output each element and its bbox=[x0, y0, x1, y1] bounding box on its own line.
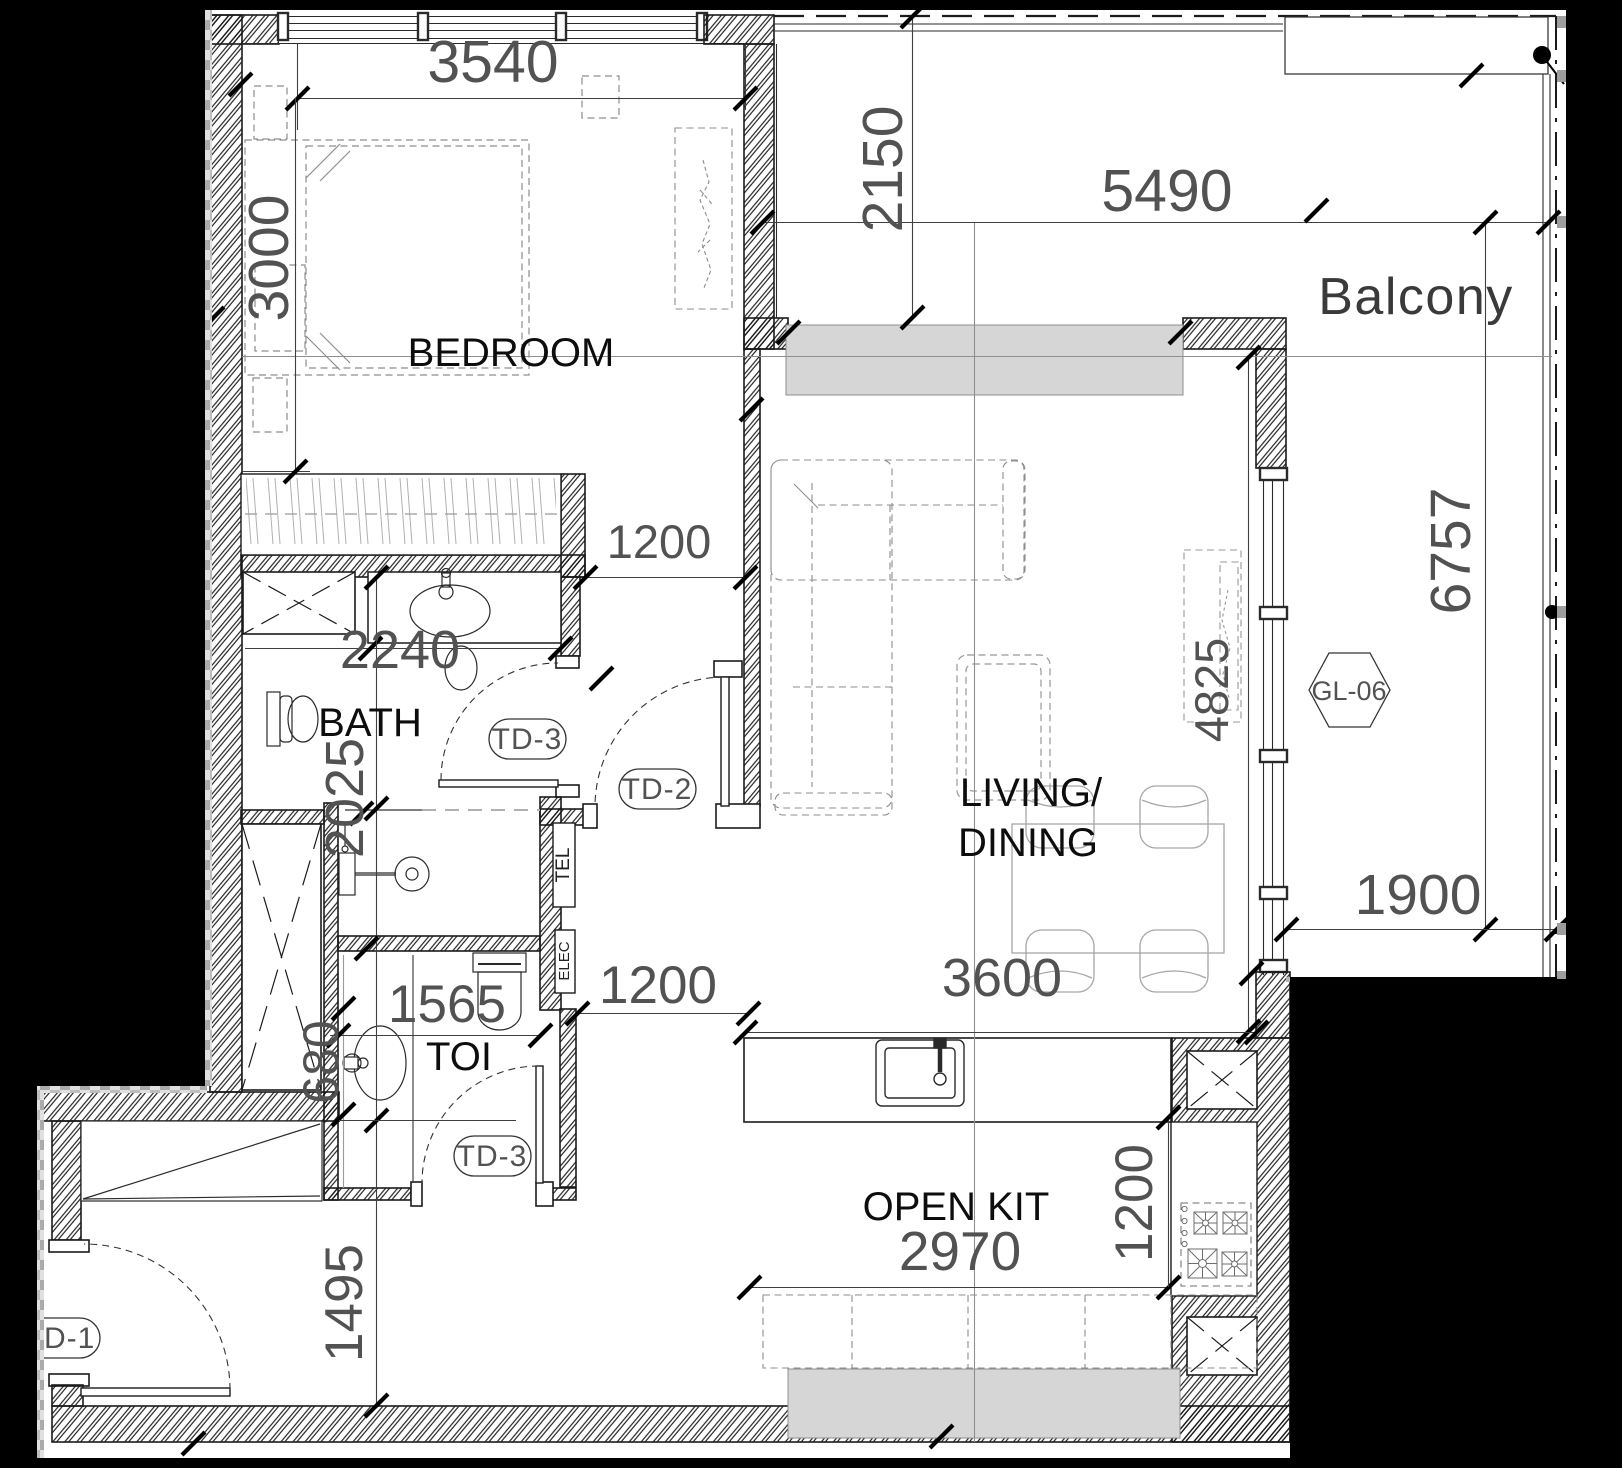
svg-text:OPEN KIT: OPEN KIT bbox=[863, 1185, 1050, 1229]
svg-text:2150: 2150 bbox=[851, 106, 915, 233]
svg-text:1200: 1200 bbox=[1105, 1144, 1164, 1262]
svg-text:LIVING/: LIVING/ bbox=[960, 771, 1103, 815]
svg-text:GL-06: GL-06 bbox=[1311, 676, 1386, 706]
svg-text:TD-2: TD-2 bbox=[622, 773, 693, 806]
svg-text:1200: 1200 bbox=[599, 956, 717, 1015]
svg-text:2025: 2025 bbox=[315, 738, 375, 858]
svg-text:6757: 6757 bbox=[1419, 488, 1483, 615]
svg-text:2970: 2970 bbox=[899, 1220, 1021, 1282]
svg-text:TD-3: TD-3 bbox=[457, 1140, 528, 1173]
svg-text:5490: 5490 bbox=[1101, 158, 1232, 224]
svg-text:1495: 1495 bbox=[315, 1244, 374, 1362]
svg-text:4825: 4825 bbox=[1185, 638, 1238, 743]
svg-text:BATH: BATH bbox=[318, 701, 422, 745]
svg-text:Balcony: Balcony bbox=[1318, 268, 1514, 326]
svg-text:1900: 1900 bbox=[1355, 863, 1482, 927]
svg-text:1565: 1565 bbox=[388, 975, 506, 1034]
svg-text:3600: 3600 bbox=[942, 948, 1062, 1008]
svg-text:TEL: TEL bbox=[553, 848, 574, 883]
svg-text:ELEC: ELEC bbox=[556, 941, 573, 980]
svg-text:DINING: DINING bbox=[958, 821, 1098, 865]
svg-text:3000: 3000 bbox=[237, 195, 301, 322]
svg-text:2240: 2240 bbox=[340, 620, 460, 680]
svg-text:3540: 3540 bbox=[427, 29, 558, 95]
svg-text:1200: 1200 bbox=[607, 515, 712, 568]
svg-text:TOI: TOI bbox=[426, 1035, 492, 1079]
svg-text:BEDROOM: BEDROOM bbox=[408, 331, 615, 375]
svg-text:TD-3: TD-3 bbox=[492, 723, 563, 756]
svg-text:680: 680 bbox=[293, 1020, 349, 1103]
